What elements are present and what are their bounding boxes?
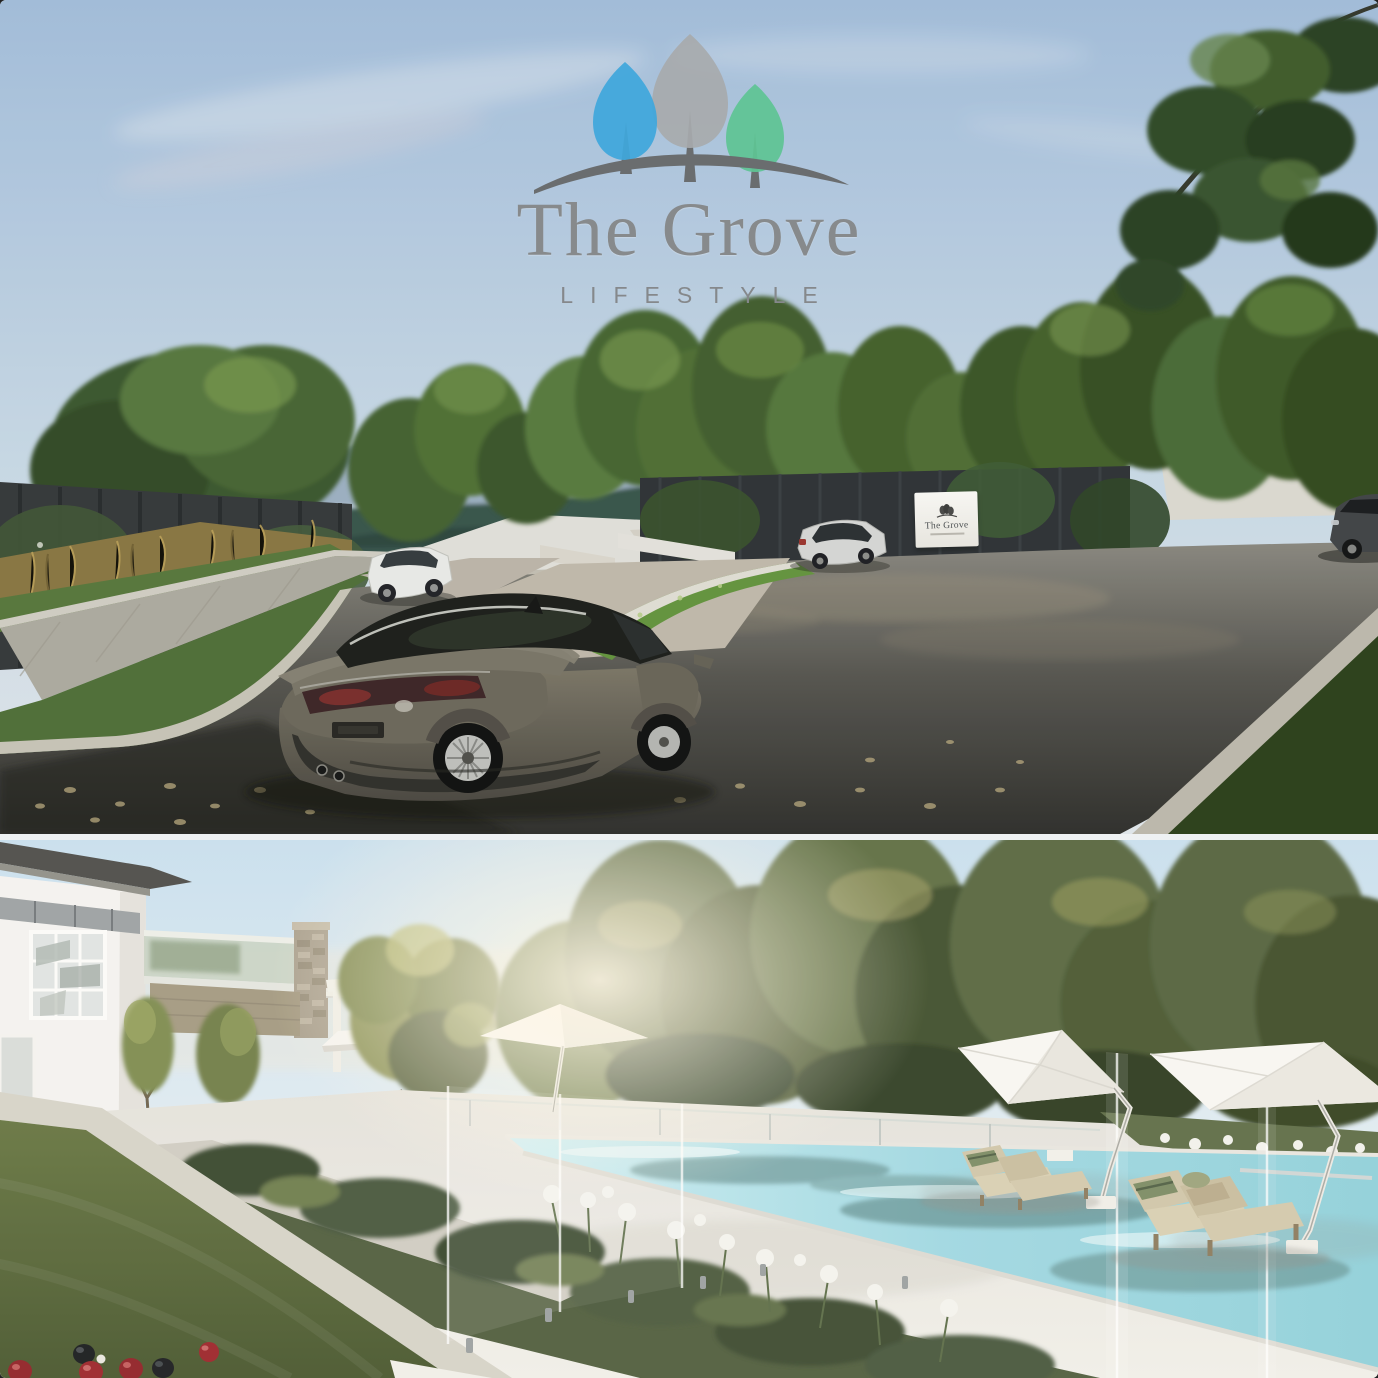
street-scene-art	[0, 0, 1378, 834]
vignette	[0, 0, 1378, 834]
entry-sign-rule	[930, 533, 964, 536]
street-scene-photo: The Grove LIFESTYLE The Grove	[0, 0, 1378, 834]
entry-sign: The Grove	[914, 491, 978, 548]
entry-sign-text: The Grove	[925, 520, 969, 531]
amenities-photo	[0, 840, 1378, 1378]
warm-haze	[0, 840, 1378, 1378]
entry-sign-trees-icon	[935, 504, 957, 520]
photo-collage: The Grove LIFESTYLE The Grove	[0, 0, 1378, 1378]
amenities-art-main	[0, 840, 1378, 1378]
